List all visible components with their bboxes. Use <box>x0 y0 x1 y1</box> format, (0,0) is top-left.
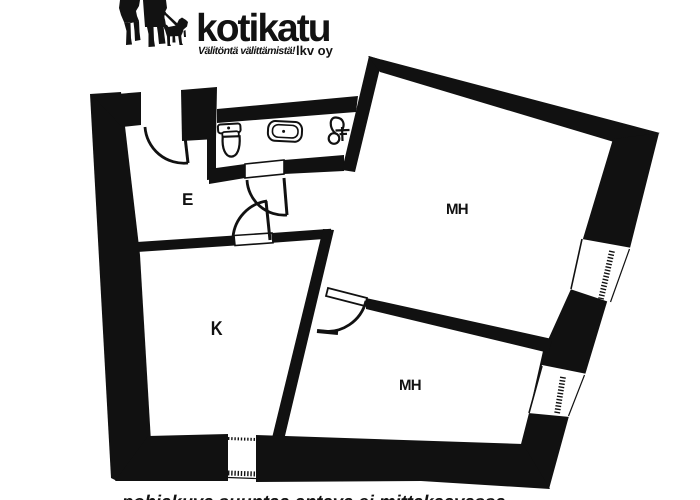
svg-text:MH: MH <box>399 377 421 394</box>
svg-text:pohjakuva suuntaa antava ei mi: pohjakuva suuntaa antava ei mittakaavass… <box>121 491 506 500</box>
svg-text:Välitöntä välittämistä!: Välitöntä välittämistä! <box>198 45 296 57</box>
svg-text:lkv oy: lkv oy <box>296 43 334 58</box>
svg-text:K: K <box>211 318 223 340</box>
svg-text:MH: MH <box>446 201 468 218</box>
svg-text:E: E <box>182 190 193 209</box>
